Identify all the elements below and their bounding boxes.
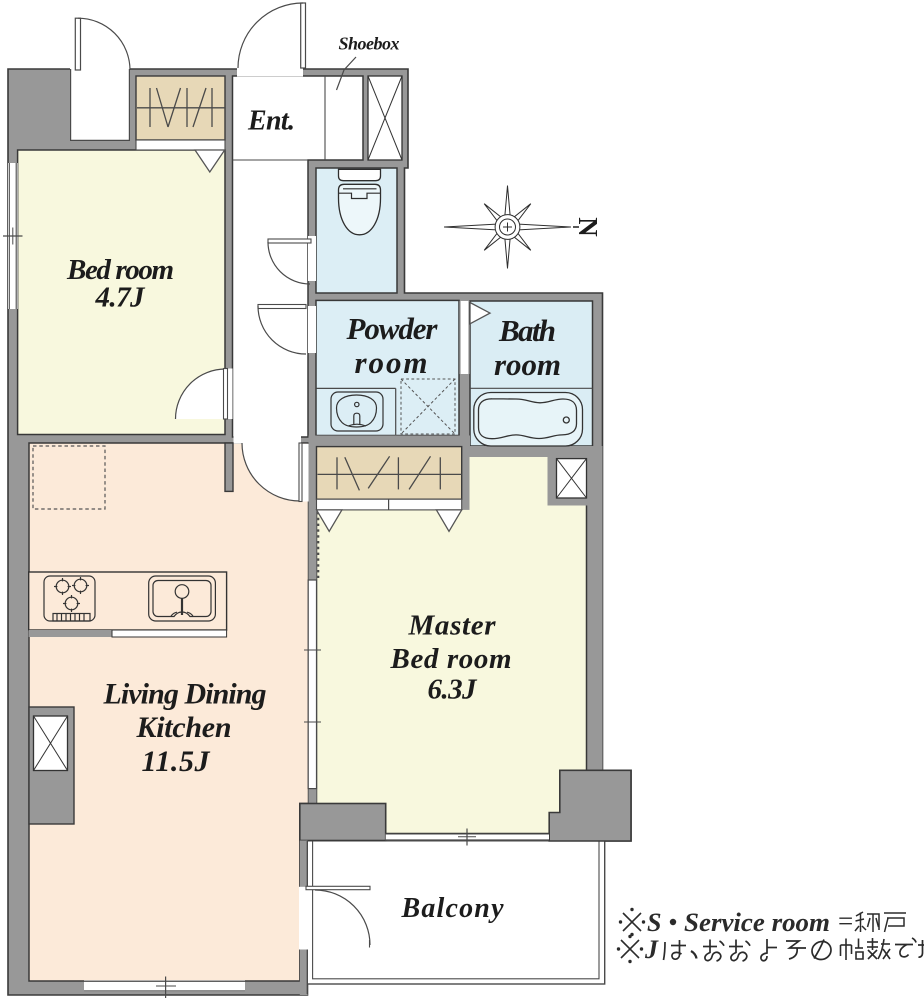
svg-text:6.3J: 6.3J — [428, 674, 479, 706]
svg-text:S: S — [647, 908, 661, 937]
svg-text:11.5J: 11.5J — [142, 745, 211, 778]
svg-text:Bed room: Bed room — [390, 643, 512, 675]
svg-text:Bath: Bath — [498, 313, 556, 348]
svg-text:Living Dining: Living Dining — [103, 678, 267, 711]
svg-text:=: = — [838, 906, 853, 936]
svg-text:Ent.: Ent. — [247, 106, 295, 137]
svg-text:N: N — [573, 217, 603, 237]
svg-text:Master: Master — [408, 610, 497, 642]
svg-text:4.7J: 4.7J — [95, 282, 147, 314]
svg-text:J: J — [644, 935, 659, 964]
svg-text:Service room: Service room — [684, 908, 830, 937]
svg-text:Kitchen: Kitchen — [136, 711, 232, 744]
svg-text:Balcony: Balcony — [401, 893, 505, 924]
svg-text:Powder: Powder — [346, 311, 439, 346]
svg-text:Shoebox: Shoebox — [339, 34, 400, 54]
svg-text:room: room — [355, 345, 428, 380]
svg-text:room: room — [494, 347, 561, 382]
